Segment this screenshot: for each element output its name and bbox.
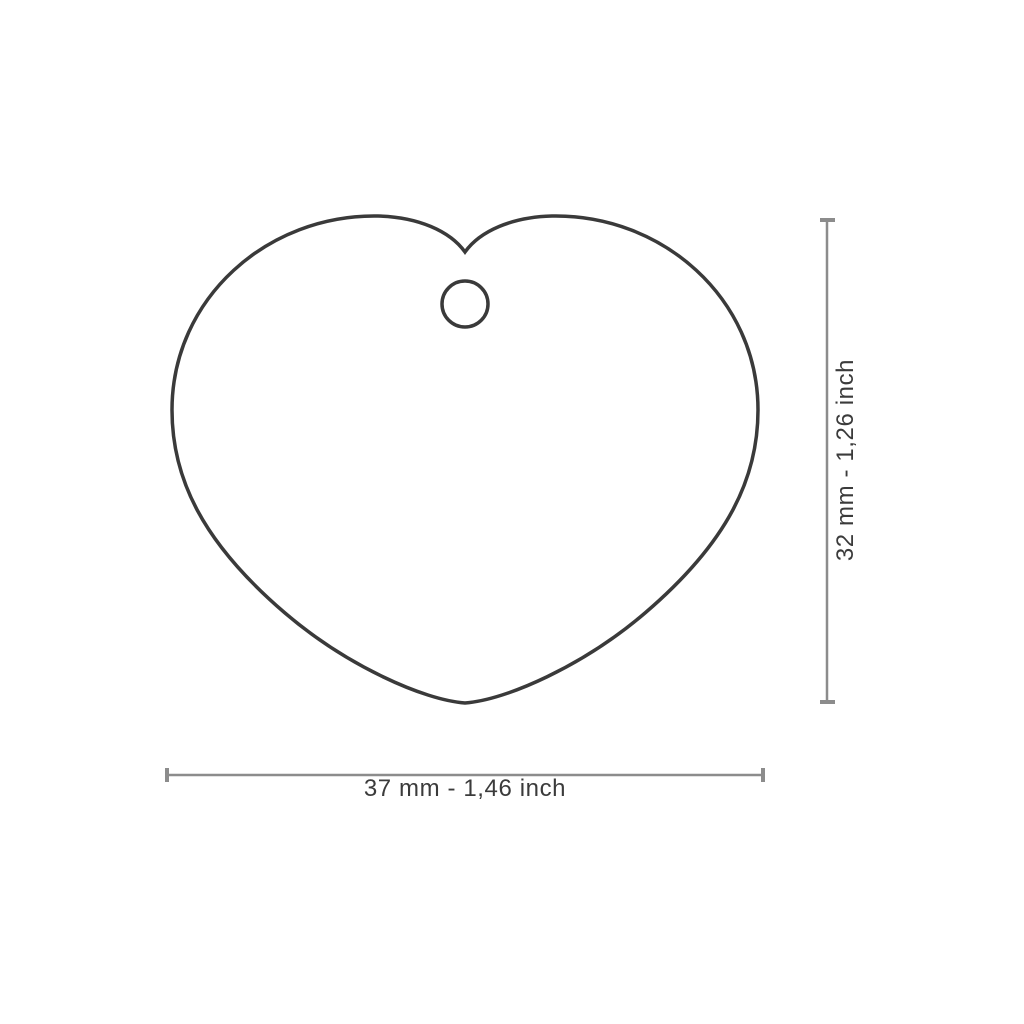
size-diagram: 37 mm - 1,46 inch 32 mm - 1,26 inch: [0, 0, 1024, 1024]
hang-hole-icon: [442, 281, 488, 327]
height-dimension-label: 32 mm - 1,26 inch: [832, 359, 860, 561]
heart-outline-icon: [172, 216, 758, 703]
diagram-canvas: [0, 0, 1024, 1024]
width-dimension-label: 37 mm - 1,46 inch: [364, 775, 566, 803]
